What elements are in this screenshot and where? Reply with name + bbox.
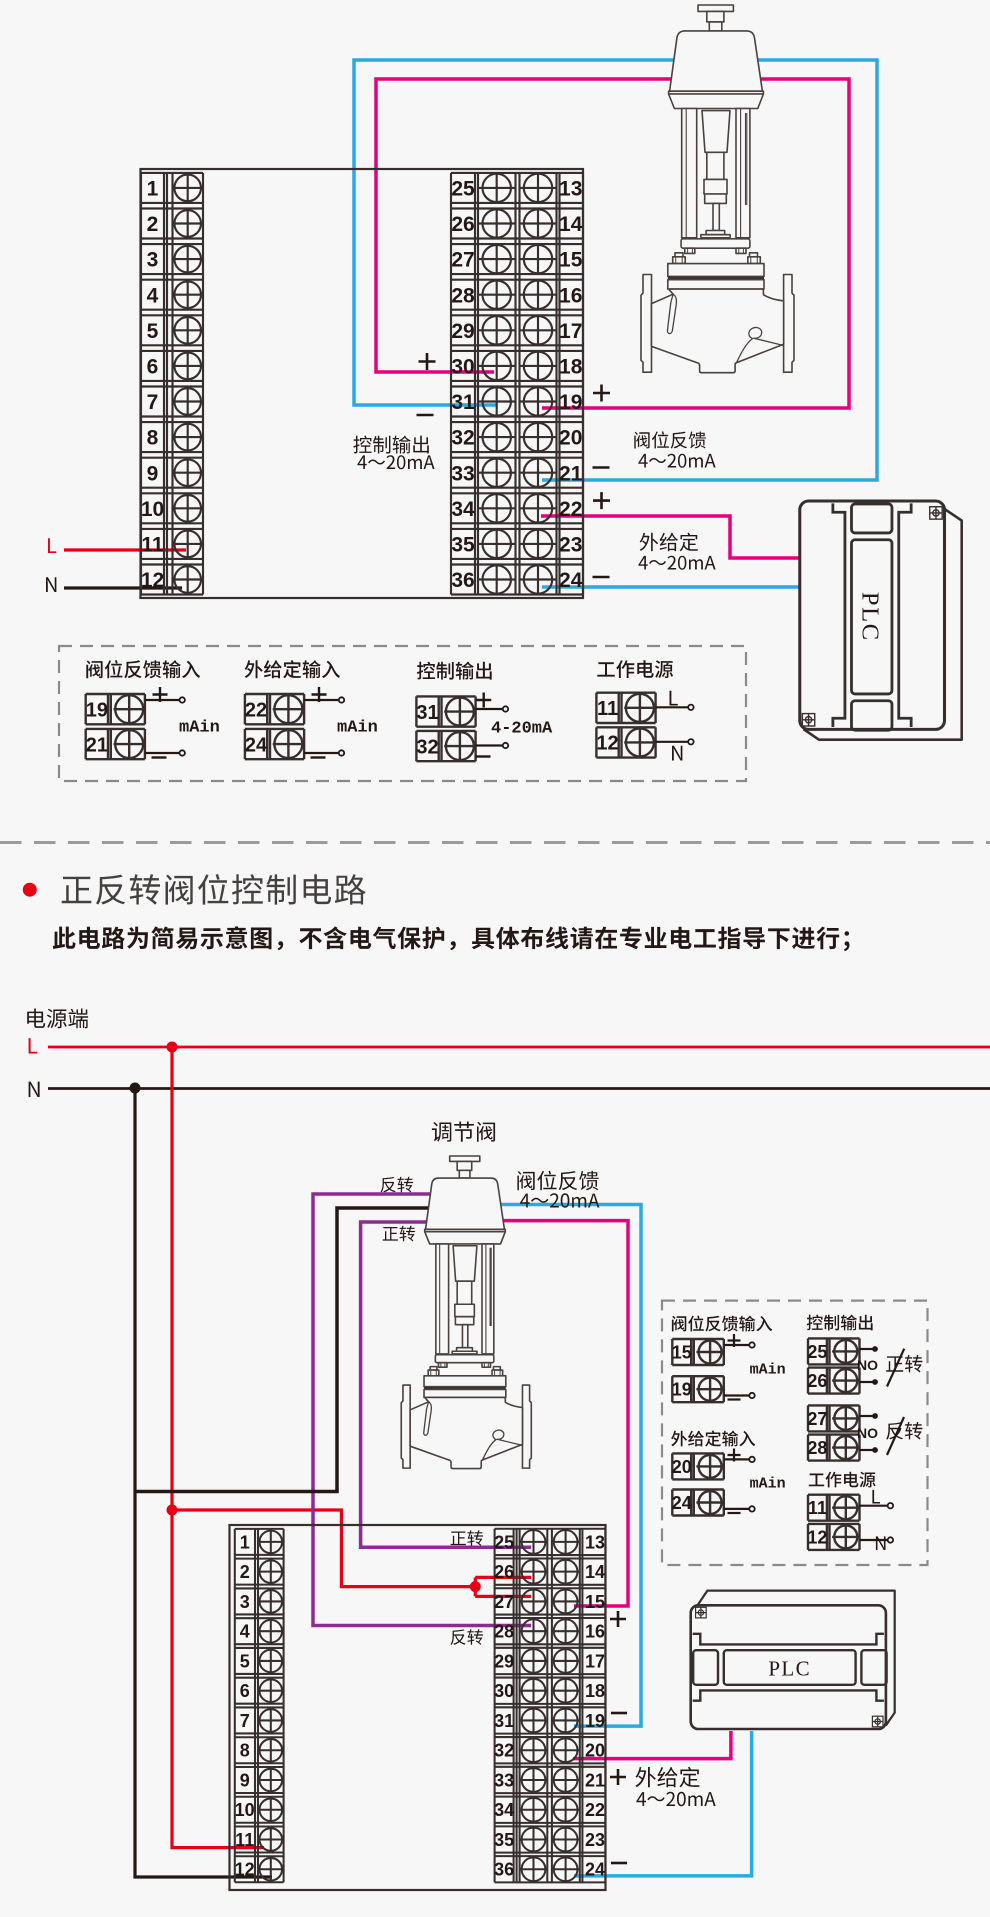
svg-text:22: 22	[245, 699, 267, 721]
svg-text:26: 26	[807, 1371, 827, 1391]
svg-text:35: 35	[451, 533, 475, 556]
svg-text:27: 27	[494, 1592, 514, 1612]
svg-text:2: 2	[147, 213, 159, 236]
svg-text:mAin: mAin	[750, 1362, 786, 1379]
svg-text:NO: NO	[857, 1357, 878, 1373]
svg-text:32: 32	[416, 736, 438, 758]
svg-text:28: 28	[807, 1438, 827, 1458]
svg-text:mAin: mAin	[337, 719, 378, 738]
svg-text:17: 17	[559, 320, 582, 343]
svg-text:1: 1	[240, 1532, 250, 1552]
svg-text:10: 10	[235, 1800, 255, 1820]
svg-text:28: 28	[494, 1622, 514, 1642]
svg-text:8: 8	[240, 1741, 250, 1761]
svg-text:19: 19	[86, 699, 108, 721]
svg-text:13: 13	[559, 177, 582, 200]
svg-text:12: 12	[596, 733, 618, 755]
svg-text:7: 7	[147, 391, 159, 414]
svg-text:6: 6	[147, 355, 159, 378]
svg-text:11: 11	[808, 1498, 827, 1518]
svg-text:25: 25	[494, 1532, 514, 1552]
svg-text:23: 23	[585, 1830, 605, 1850]
svg-text:12: 12	[141, 569, 164, 592]
svg-text:15: 15	[559, 249, 583, 272]
svg-text:26: 26	[494, 1562, 514, 1582]
svg-text:30: 30	[451, 355, 474, 378]
svg-text:PLC: PLC	[768, 1656, 811, 1680]
svg-text:35: 35	[494, 1830, 514, 1850]
svg-text:31: 31	[416, 702, 438, 724]
svg-text:20: 20	[585, 1741, 605, 1761]
svg-text:1: 1	[147, 177, 159, 200]
svg-text:21: 21	[585, 1770, 605, 1790]
svg-text:20: 20	[559, 427, 582, 450]
svg-text:28: 28	[451, 284, 475, 307]
svg-text:24: 24	[559, 569, 583, 592]
svg-text:25: 25	[451, 177, 475, 200]
svg-text:29: 29	[451, 320, 474, 343]
svg-text:14: 14	[585, 1562, 605, 1582]
svg-text:11: 11	[235, 1830, 254, 1850]
svg-text:23: 23	[559, 533, 582, 556]
svg-text:20: 20	[672, 1457, 692, 1477]
svg-text:24: 24	[585, 1860, 605, 1880]
svg-text:3: 3	[147, 249, 159, 272]
svg-text:12: 12	[235, 1860, 255, 1880]
svg-text:11: 11	[141, 533, 164, 556]
svg-text:24: 24	[245, 734, 268, 756]
svg-text:13: 13	[585, 1532, 605, 1552]
svg-text:32: 32	[451, 427, 474, 450]
svg-text:18: 18	[559, 355, 583, 378]
svg-text:21: 21	[86, 734, 108, 756]
svg-text:19: 19	[559, 391, 582, 414]
svg-text:15: 15	[585, 1592, 605, 1612]
svg-text:18: 18	[585, 1681, 605, 1701]
svg-text:PLC: PLC	[857, 592, 884, 642]
svg-text:31: 31	[451, 391, 475, 414]
svg-text:27: 27	[451, 249, 474, 272]
svg-text:19: 19	[672, 1380, 692, 1400]
svg-text:4: 4	[147, 284, 159, 307]
svg-text:22: 22	[585, 1800, 605, 1820]
svg-text:33: 33	[451, 462, 474, 485]
svg-text:34: 34	[451, 498, 475, 521]
svg-text:4: 4	[240, 1622, 250, 1642]
svg-text:31: 31	[494, 1711, 514, 1731]
svg-text:24: 24	[672, 1493, 692, 1513]
svg-text:3: 3	[240, 1592, 250, 1612]
svg-text:19: 19	[585, 1711, 605, 1731]
svg-text:36: 36	[494, 1860, 514, 1880]
svg-text:22: 22	[559, 498, 582, 521]
svg-text:NO: NO	[857, 1425, 878, 1441]
svg-text:33: 33	[494, 1770, 514, 1790]
svg-text:10: 10	[141, 498, 164, 521]
svg-text:17: 17	[585, 1651, 605, 1671]
svg-text:14: 14	[559, 213, 583, 236]
svg-text:30: 30	[494, 1681, 514, 1701]
svg-text:36: 36	[451, 569, 474, 592]
svg-text:29: 29	[494, 1651, 514, 1671]
svg-text:34: 34	[494, 1800, 514, 1820]
svg-text:16: 16	[559, 284, 582, 307]
svg-text:16: 16	[585, 1622, 605, 1642]
svg-text:15: 15	[672, 1342, 692, 1362]
svg-text:26: 26	[451, 213, 474, 236]
svg-text:25: 25	[807, 1342, 827, 1362]
svg-text:9: 9	[240, 1770, 250, 1790]
svg-text:5: 5	[147, 320, 159, 343]
svg-text:32: 32	[494, 1741, 514, 1761]
svg-text:21: 21	[559, 462, 583, 485]
svg-text:5: 5	[240, 1651, 250, 1671]
svg-text:4-20mA: 4-20mA	[491, 720, 553, 739]
svg-text:9: 9	[147, 462, 159, 485]
svg-text:27: 27	[807, 1409, 827, 1429]
svg-text:12: 12	[807, 1527, 827, 1547]
svg-text:6: 6	[240, 1681, 250, 1701]
svg-text:2: 2	[240, 1562, 250, 1582]
svg-text:mAin: mAin	[750, 1476, 786, 1493]
svg-text:mAin: mAin	[179, 719, 220, 738]
svg-text:8: 8	[147, 427, 159, 450]
svg-text:7: 7	[240, 1711, 250, 1731]
svg-text:11: 11	[597, 698, 618, 720]
